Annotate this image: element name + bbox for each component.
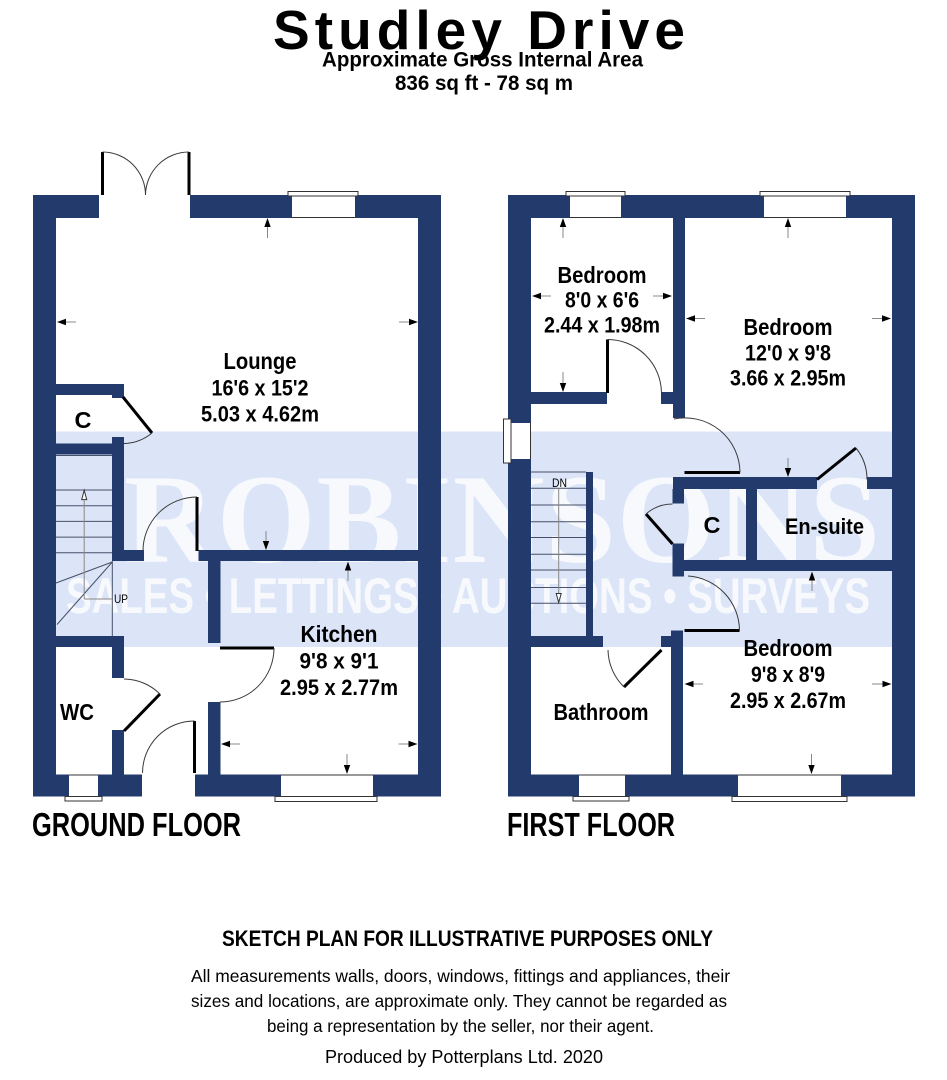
svg-text:2.95 x 2.67m: 2.95 x 2.67m	[730, 688, 846, 713]
svg-text:DN: DN	[552, 478, 567, 490]
svg-text:16'6 x 15'2: 16'6 x 15'2	[212, 376, 309, 401]
svg-text:3.66 x 2.95m: 3.66 x 2.95m	[730, 366, 846, 391]
svg-text:Bathroom: Bathroom	[554, 699, 649, 725]
svg-text:All measurements walls, doors,: All measurements walls, doors, windows, …	[191, 966, 730, 986]
svg-text:Lounge: Lounge	[224, 348, 297, 374]
svg-text:C: C	[704, 512, 721, 538]
svg-text:Approximate Gross Internal Are: Approximate Gross Internal Area	[322, 49, 643, 72]
svg-text:2.95 x 2.77m: 2.95 x 2.77m	[280, 675, 398, 700]
svg-text:WC: WC	[60, 699, 94, 725]
svg-text:UP: UP	[114, 594, 128, 606]
svg-text:Bedroom: Bedroom	[744, 314, 833, 340]
svg-text:836 sq ft - 78 sq m: 836 sq ft - 78 sq m	[395, 72, 573, 95]
svg-text:12'0 x 9'8: 12'0 x 9'8	[745, 341, 831, 366]
svg-text:Bedroom: Bedroom	[744, 635, 833, 661]
svg-text:FIRST FLOOR: FIRST FLOOR	[507, 807, 675, 844]
svg-text:SKETCH PLAN FOR ILLUSTRATIVE P: SKETCH PLAN FOR ILLUSTRATIVE PURPOSES ON…	[222, 926, 713, 951]
svg-text:GROUND FLOOR: GROUND FLOOR	[32, 807, 241, 844]
svg-text:Bedroom: Bedroom	[558, 262, 647, 288]
svg-text:9'8 x 9'1: 9'8 x 9'1	[300, 649, 379, 674]
svg-text:8'0 x 6'6: 8'0 x 6'6	[565, 288, 639, 313]
svg-text:C: C	[75, 407, 92, 433]
svg-text:sizes and locations, are appro: sizes and locations, are approximate onl…	[191, 991, 727, 1011]
svg-text:9'8 x 8'9: 9'8 x 8'9	[751, 662, 825, 687]
svg-text:Kitchen: Kitchen	[301, 621, 378, 647]
svg-text:5.03 x 4.62m: 5.03 x 4.62m	[201, 402, 319, 427]
svg-text:SALES • LETTINGS • AUCTIONS •: SALES • LETTINGS • AUCTIONS • SURVEYS	[66, 568, 870, 624]
svg-text:being a representation by the: being a representation by the seller, no…	[267, 1016, 654, 1036]
svg-text:En-suite: En-suite	[785, 514, 864, 539]
svg-text:Produced by Potterplans Ltd. 2: Produced by Potterplans Ltd. 2020	[325, 1047, 603, 1067]
svg-text:2.44 x 1.98m: 2.44 x 1.98m	[544, 313, 660, 338]
